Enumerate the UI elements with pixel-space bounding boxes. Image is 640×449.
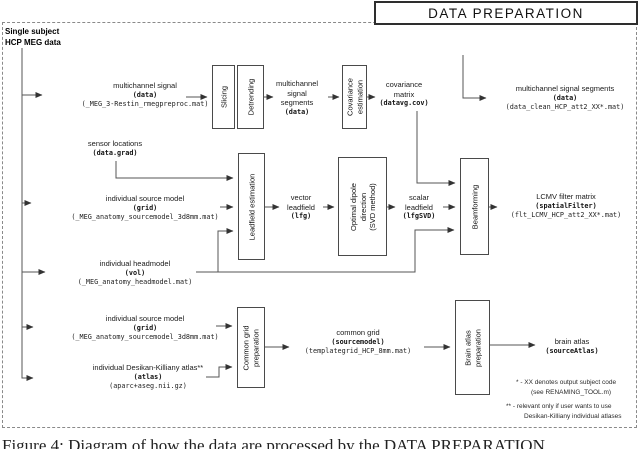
- figure-data-preparation-diagram: DATA PREPARATION Single subject HCP MEG …: [0, 0, 640, 449]
- label-vector-leadfield: vector leadfield (lfg): [287, 193, 315, 222]
- label-source-model-1: individual source model (grid) (_MEG_ana…: [71, 194, 218, 223]
- footnote-1-line-2: (see RENAMING_TOOL.m): [531, 388, 611, 398]
- slicing-box-label: Slicing: [219, 86, 229, 108]
- brain-atlas-preparation-box-label: Brain atlas preparation: [463, 329, 482, 367]
- label-atlas-in: individual Desikan-Killiany atlas** (atl…: [93, 363, 203, 392]
- label-brain-atlas-out: brain atlas (sourceAtlas): [545, 337, 598, 356]
- label-source-model-2: individual source model (grid) (_MEG_ana…: [71, 314, 218, 343]
- common-grid-preparation-box-label: Common grid preparation: [242, 325, 261, 370]
- leadfield-estimation-box-label: Leadfield estimation: [247, 173, 257, 240]
- optimal-dipole-box: Optimal dipole direction (SVD method): [338, 157, 387, 256]
- common-grid-preparation-box: Common grid preparation: [237, 307, 265, 388]
- label-common-grid-out: common grid (sourcemodel) (templategrid_…: [305, 328, 411, 357]
- label-covariance-matrix: covariance matrix (datavg.cov): [379, 80, 428, 109]
- pipeline-title-box: DATA PREPARATION: [374, 1, 638, 25]
- leadfield-estimation-box: Leadfield estimation: [238, 153, 265, 260]
- pipeline-title: DATA PREPARATION: [428, 6, 584, 21]
- label-scalar-leadfield: scalar leadfield (lfgSVD): [403, 193, 436, 222]
- label-mc-signal-segments-out: multichannel signal segments (data) (dat…: [506, 84, 625, 113]
- slicing-box: Slicing: [212, 65, 235, 129]
- footnote-2-line-2: Desikan-Killiany individual atlases: [524, 412, 622, 422]
- covariance-estimation-box-label: Covariance estimation: [345, 78, 364, 116]
- beamforming-box: Beamforming: [460, 158, 489, 255]
- label-headmodel: individual headmodel (vol) (_MEG_anatomy…: [78, 259, 193, 288]
- figure-caption: Figure 4: Diagram of how the data are pr…: [2, 436, 638, 449]
- footnote-2-line-1: ** - relevant only if user wants to use: [506, 402, 612, 412]
- label-mc-signal-segments: multichannel signal segments (data): [276, 79, 318, 117]
- optimal-dipole-box-label: Optimal dipole direction (SVD method): [348, 183, 377, 231]
- subject-label: Single subject HCP MEG data: [5, 26, 61, 48]
- detrending-box: Detrending: [237, 65, 264, 129]
- label-lcmv-filter: LCMV filter matrix (spatialFilter) (flt_…: [511, 192, 622, 221]
- label-sensor-locations: sensor locations (data.grad): [88, 139, 142, 158]
- footnote-1-line-1: * - XX denotes output subject code: [516, 378, 616, 388]
- detrending-box-label: Detrending: [246, 79, 256, 116]
- covariance-estimation-box: Covariance estimation: [342, 65, 367, 129]
- brain-atlas-preparation-box: Brain atlas preparation: [455, 300, 490, 395]
- label-multichannel-signal: multichannel signal (data) (_MEG_3-Resti…: [82, 81, 209, 110]
- beamforming-box-label: Beamforming: [470, 184, 480, 229]
